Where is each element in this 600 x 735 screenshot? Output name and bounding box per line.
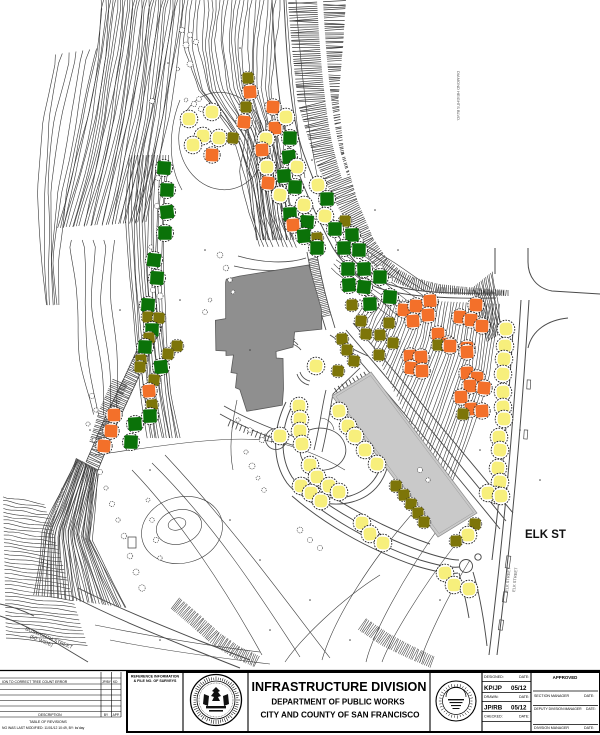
- svg-text:REFERENCE INFORMATION: REFERENCE INFORMATION: [131, 675, 180, 679]
- svg-text:DESIGNED:: DESIGNED:: [484, 675, 504, 679]
- svg-text:ELK ST: ELK ST: [525, 529, 566, 541]
- svg-text:ION TO CORRECT TREE COUNT ERRO: ION TO CORRECT TREE COUNT ERROR: [2, 680, 68, 684]
- svg-text:DEPARTMENT OF PUBLIC WORKS: DEPARTMENT OF PUBLIC WORKS: [271, 698, 405, 707]
- svg-text:JP/BY: JP/BY: [102, 680, 112, 684]
- svg-text:DATE:: DATE:: [519, 695, 529, 699]
- svg-text:KP/JP: KP/JP: [484, 685, 502, 692]
- svg-text:APP.: APP.: [113, 713, 120, 717]
- svg-text:& FILE NO. OF SURVEYS: & FILE NO. OF SURVEYS: [134, 679, 177, 683]
- svg-text:DIVISION MANAGER: DIVISION MANAGER: [534, 726, 569, 730]
- svg-text:DATE:: DATE:: [584, 694, 594, 698]
- svg-text:CHECKED:: CHECKED:: [484, 715, 503, 719]
- svg-text:DESCRIPTION: DESCRIPTION: [38, 713, 62, 717]
- svg-text:INFRASTRUCTURE DIVISION: INFRASTRUCTURE DIVISION: [252, 680, 427, 694]
- svg-text:TABLE OF REVISIONS: TABLE OF REVISIONS: [29, 720, 67, 724]
- svg-text:DRAWN:: DRAWN:: [484, 695, 498, 699]
- svg-text:APPROVED: APPROVED: [553, 675, 578, 680]
- svg-text:DEPUTY DIVISION MANAGER: DEPUTY DIVISION MANAGER: [534, 707, 582, 711]
- svg-text:CITY AND COUNTY OF SAN FRANCIS: CITY AND COUNTY OF SAN FRANCISCO: [260, 711, 420, 720]
- svg-text:JP/RB: JP/RB: [484, 705, 503, 712]
- svg-text:DATE:: DATE:: [584, 726, 594, 730]
- svg-text:NG WAS LAST MODIFIED: 11/01/12: NG WAS LAST MODIFIED: 11/01/12 10:49, BY…: [2, 726, 85, 730]
- svg-text:DATE:: DATE:: [519, 675, 529, 679]
- svg-text:KD: KD: [113, 680, 118, 684]
- svg-text:DIAMOND HEIGHTS BLVD.: DIAMOND HEIGHTS BLVD.: [456, 71, 461, 121]
- svg-text:DATE:: DATE:: [586, 707, 596, 711]
- svg-text:SECTION MANAGER: SECTION MANAGER: [534, 694, 570, 698]
- svg-text:05/12: 05/12: [511, 705, 527, 712]
- svg-text:DATE:: DATE:: [519, 715, 529, 719]
- svg-text:05/12: 05/12: [511, 685, 527, 692]
